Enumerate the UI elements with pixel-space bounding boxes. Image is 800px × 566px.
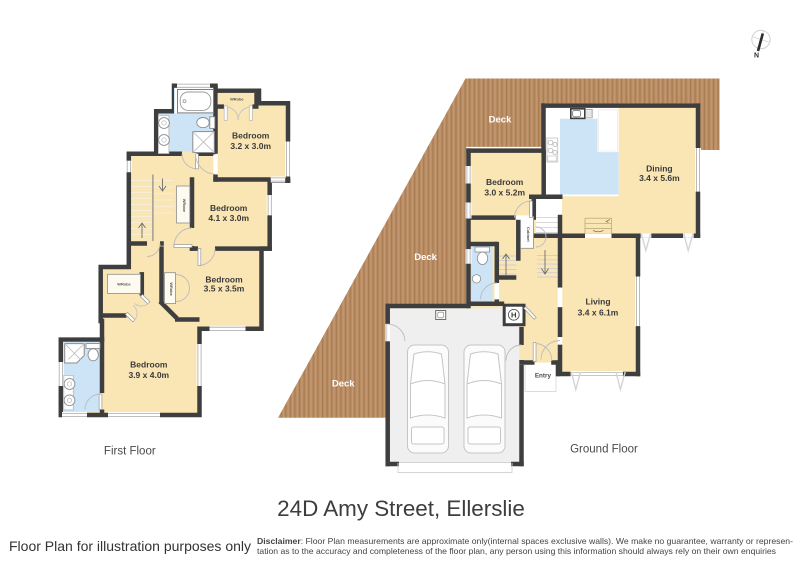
svg-text:WRobe: WRobe <box>182 199 187 213</box>
svg-text:Ground Floor: Ground Floor <box>570 444 638 456</box>
svg-text:3.9 x 4.0m: 3.9 x 4.0m <box>128 370 169 380</box>
svg-text:4.1 x 3.0m: 4.1 x 3.0m <box>208 213 249 223</box>
svg-text:3.5 x 3.5m: 3.5 x 3.5m <box>204 284 245 294</box>
svg-text:WRobe: WRobe <box>230 97 244 102</box>
svg-text:Dining: Dining <box>646 163 672 173</box>
svg-text:First Floor: First Floor <box>104 446 156 458</box>
svg-text:Cabinet: Cabinet <box>526 227 531 242</box>
svg-text:Bedroom: Bedroom <box>210 203 248 213</box>
svg-text:24D Amy Street, Ellerslie: 24D Amy Street, Ellerslie <box>277 496 525 521</box>
svg-text:Disclaimer: Floor Plan measure: Disclaimer: Floor Plan measurements are … <box>257 537 793 546</box>
svg-text:3.2 x 3.0m: 3.2 x 3.0m <box>230 141 271 151</box>
svg-text:Entry: Entry <box>535 373 552 380</box>
svg-text:N: N <box>754 53 759 60</box>
svg-text:Deck: Deck <box>332 378 355 389</box>
svg-text:WRobe: WRobe <box>117 282 131 287</box>
svg-text:3.4 x 5.6m: 3.4 x 5.6m <box>639 173 680 183</box>
svg-text:Floor Plan for illustration pu: Floor Plan for illustration purposes onl… <box>9 538 251 554</box>
svg-text:H: H <box>511 311 516 320</box>
svg-text:Bedroom: Bedroom <box>486 177 524 187</box>
svg-text:3.4 x 6.1m: 3.4 x 6.1m <box>578 307 619 317</box>
svg-text:3.0 x 5.2m: 3.0 x 5.2m <box>484 188 525 198</box>
svg-text:Bedroom: Bedroom <box>232 131 270 141</box>
svg-text:Bedroom: Bedroom <box>130 360 168 370</box>
svg-text:WRobe: WRobe <box>169 282 174 296</box>
svg-text:Deck: Deck <box>414 252 437 263</box>
svg-text:tation as to the accuracy and: tation as to the accuracy and completene… <box>257 547 776 556</box>
svg-text:Deck: Deck <box>489 114 512 125</box>
svg-text:Living: Living <box>585 296 610 306</box>
